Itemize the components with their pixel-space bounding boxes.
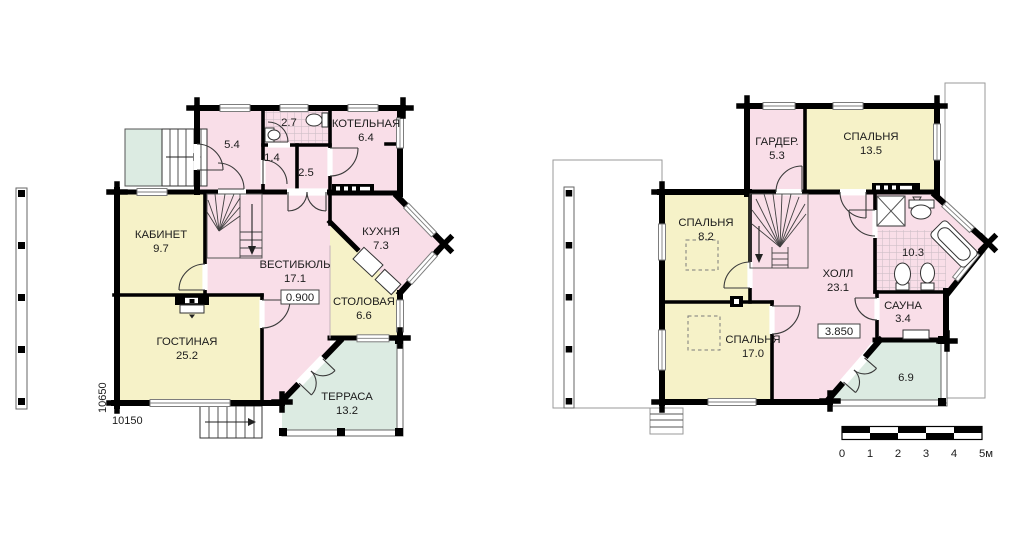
porch-landing <box>125 129 162 186</box>
label-bedroom-large-name: СПАЛЬНЯ <box>843 131 898 143</box>
scale-label-2: 2 <box>895 448 901 460</box>
scale-label-3: 3 <box>923 448 929 460</box>
label-bedroom-small-name: СПАЛЬНЯ <box>678 217 733 229</box>
label-cabinet-name: КАБИНЕТ <box>135 229 187 241</box>
sauna-bench <box>903 330 929 339</box>
first-floor-plan: 0.900 5.4 2.7 КОТЕЛЬНАЯ 6.4 1.4 2.5 КАБИ… <box>97 100 457 438</box>
bidet <box>895 263 911 290</box>
floor1-elevation-mark: 0.900 <box>281 290 319 304</box>
label-kitchen-area: 7.3 <box>373 240 389 252</box>
chimney-block <box>730 296 743 307</box>
label-tambour-area: 5.4 <box>224 139 240 151</box>
floor-plan-drawing: 0.900 5.4 2.7 КОТЕЛЬНАЯ 6.4 1.4 2.5 КАБИ… <box>0 0 1010 535</box>
label-terrace-name: ТЕРРАСА <box>321 391 373 403</box>
scale-label-0: 0 <box>839 448 845 460</box>
scale-label-4: 4 <box>951 448 957 460</box>
floor2-elevation-mark: 3.850 <box>818 324 860 338</box>
floor-plan-svg: 0.900 5.4 2.7 КОТЕЛЬНАЯ 6.4 1.4 2.5 КАБИ… <box>0 0 1010 535</box>
label-hall-area: 23.1 <box>827 282 849 294</box>
dim-width-10150: 10150 <box>112 415 143 427</box>
boiler-counter <box>332 184 374 193</box>
label-living-name: ГОСТИНАЯ <box>157 336 218 348</box>
label-boiler-area: 6.4 <box>358 132 374 144</box>
label-wardrobe-name: ГАРДЕР. <box>755 136 798 148</box>
label-hall-name: ХОЛЛ <box>823 268 854 280</box>
label-terrace-area: 13.2 <box>336 405 358 417</box>
label-bedroom-large-area: 13.5 <box>860 145 882 157</box>
label-bathroom-f2-area: 10.3 <box>902 247 924 259</box>
floor2-elevation-value: 3.850 <box>825 326 853 338</box>
label-sauna-area: 3.4 <box>895 313 911 325</box>
scale-bar: 0 1 2 3 4 5м <box>839 427 993 461</box>
roof-steps <box>650 408 683 434</box>
label-boiler-name: КОТЕЛЬНАЯ <box>332 118 400 130</box>
hall-wardrobe-counter <box>872 183 920 192</box>
label-bedroom-mid-area: 17.0 <box>742 348 764 360</box>
label-dining-name: СТОЛОВАЯ <box>333 296 395 308</box>
exterior-stairs <box>200 406 262 438</box>
shower <box>877 196 905 226</box>
roof-railing <box>564 187 574 408</box>
dim-height-10650: 10650 <box>97 382 109 413</box>
label-sauna-name: САУНА <box>884 300 922 312</box>
label-bathroom-f1-area: 2.7 <box>281 117 297 129</box>
label-balcony-area: 6.9 <box>898 372 914 384</box>
label-dining-area: 6.6 <box>356 310 372 322</box>
floor1-elevation-value: 0.900 <box>286 292 314 304</box>
scale-bar-labels: 0 1 2 3 4 5м <box>839 448 993 460</box>
toilet-f1 <box>306 113 328 127</box>
section-marker <box>16 188 27 409</box>
label-cabinet-area: 9.7 <box>153 243 169 255</box>
room-bedroom-small <box>662 192 750 302</box>
label-vestibule-area: 17.1 <box>284 273 306 285</box>
second-floor-plan: 3.850 ГАРДЕР. 5.3 СПАЛЬНЯ 13.5 СПАЛЬНЯ 8… <box>553 83 1001 434</box>
label-hallway-area: 1.4 <box>264 152 280 164</box>
room-wardrobe <box>747 106 805 192</box>
label-bedroom-mid-name: СПАЛЬНЯ <box>725 334 780 346</box>
label-corridor-area: 2.5 <box>298 167 314 179</box>
label-kitchen-name: КУХНЯ <box>362 226 400 238</box>
label-bedroom-small-area: 8.2 <box>698 231 714 243</box>
label-living-area: 25.2 <box>176 350 198 362</box>
scale-label-1: 1 <box>867 448 873 460</box>
label-vestibule-name: ВЕСТИБЮЛЬ <box>259 259 330 271</box>
toilet-f2 <box>921 263 935 290</box>
scale-label-5m: 5м <box>979 448 993 460</box>
label-wardrobe-area: 5.3 <box>769 150 785 162</box>
